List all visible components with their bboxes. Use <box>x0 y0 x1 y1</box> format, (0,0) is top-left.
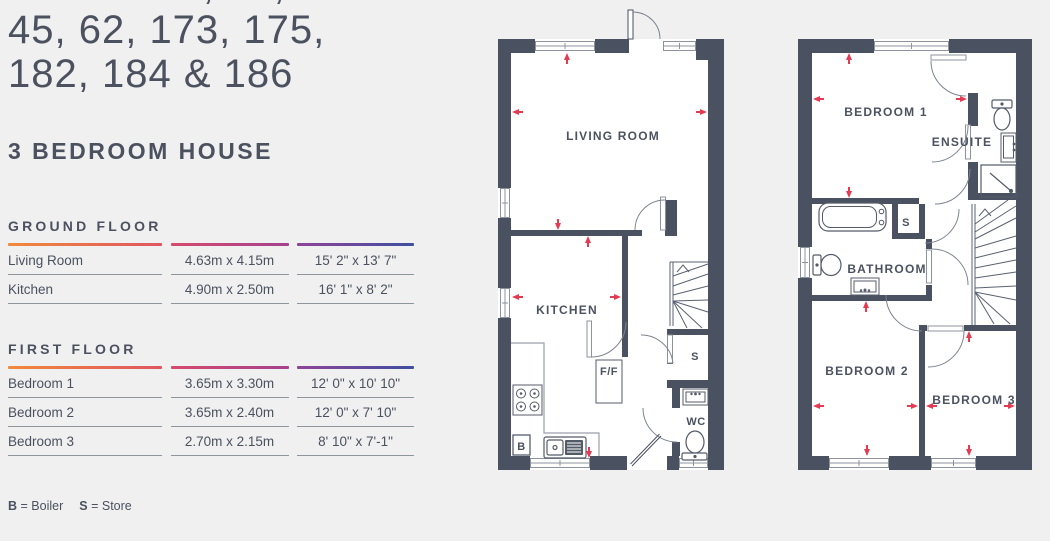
first-floor-plan: BEDROOM 1 ENSUITE S BATHROOM BEDROOM 2 B… <box>798 4 1034 474</box>
first-floor-heading: FIRST FLOOR <box>8 341 414 357</box>
store-label: S <box>691 351 699 363</box>
door-arc-icon <box>633 12 660 39</box>
front-door <box>628 10 660 39</box>
room-name: Living Room <box>8 246 162 275</box>
room-imperial-dims: 12' 0" x 7' 10" <box>297 398 414 427</box>
kitchen-sink-icon <box>544 437 586 458</box>
ground-floor-heading: GROUND FLOOR <box>8 218 414 234</box>
plots-title-line2: 45, 62, 173, 175, <box>8 8 325 52</box>
toilet-icon <box>992 100 1012 130</box>
table-row: Bedroom 2 3.65m x 2.40m 12' 0" x 7' 10" <box>8 398 414 427</box>
ground-floor-table: GROUND FLOOR Living Room 4.63m x 4.15m 1… <box>8 218 414 304</box>
legend-key: S <box>79 499 87 513</box>
room-metric-dims: 3.65m x 3.30m <box>171 369 289 398</box>
table-row: Kitchen 4.90m x 2.50m 16' 1" x 8' 2" <box>8 275 414 304</box>
room-metric-dims: 2.70m x 2.15m <box>171 427 289 456</box>
boiler-label: B <box>517 441 525 453</box>
bedroom1-label: BEDROOM 1 <box>844 105 927 119</box>
ensuite-label: ENSUITE <box>932 135 992 149</box>
room-name: Bedroom 2 <box>8 398 162 427</box>
bathroom-label: BATHROOM <box>847 262 926 276</box>
legend-text: = Boiler <box>21 499 64 513</box>
wc-label: WC <box>686 416 705 428</box>
first-floor-table: FIRST FLOOR Bedroom 1 3.65m x 3.30m 12' … <box>8 341 414 456</box>
legend-item-boiler: B = Boiler <box>8 499 63 513</box>
room-metric-dims: 4.63m x 4.15m <box>171 246 289 275</box>
room-imperial-dims: 16' 1" x 8' 2" <box>297 275 414 304</box>
kitchen-label: KITCHEN <box>536 303 598 317</box>
ground-floor-plan: B F/F LIVING ROOM KITCHEN S WC <box>494 4 730 474</box>
plots-title-line3: 182, 184 & 186 <box>8 52 325 96</box>
bedroom2-label: BEDROOM 2 <box>825 364 908 378</box>
legend-key: B <box>8 499 17 513</box>
house-type-heading: 3 BEDROOM HOUSE <box>8 138 273 165</box>
room-imperial-dims: 8' 10" x 7'-1" <box>297 427 414 456</box>
room-name: Bedroom 3 <box>8 427 162 456</box>
legend-text: = Store <box>91 499 132 513</box>
room-metric-dims: 4.90m x 2.50m <box>171 275 289 304</box>
fridge-freezer-label: F/F <box>600 366 618 378</box>
room-imperial-dims: 12' 0" x 10' 10" <box>297 369 414 398</box>
plots-title: PLOTS 34, 36, 45, 62, 173, 175, 182, 184… <box>8 0 325 96</box>
brochure-page: PLOTS 34, 36, 45, 62, 173, 175, 182, 184… <box>0 0 1050 541</box>
living-room-label: LIVING ROOM <box>566 129 660 143</box>
room-name: Bedroom 1 <box>8 369 162 398</box>
bathtub-icon <box>819 203 886 231</box>
plan-legend: B = BoilerS = Store <box>8 499 148 513</box>
room-name: Kitchen <box>8 275 162 304</box>
table-row: Living Room 4.63m x 4.15m 15' 2" x 13' 7… <box>8 246 414 275</box>
toilet-icon <box>813 255 841 276</box>
boiler-box: B <box>513 435 530 455</box>
legend-item-store: S = Store <box>79 499 131 513</box>
room-metric-dims: 3.65m x 2.40m <box>171 398 289 427</box>
fridge-freezer-box: F/F <box>596 360 622 403</box>
table-row: Bedroom 3 2.70m x 2.15m 8' 10" x 7'-1" <box>8 427 414 456</box>
plots-title-line1: PLOTS 34, 36, <box>8 0 325 8</box>
bedroom3-label: BEDROOM 3 <box>932 393 1015 407</box>
room-imperial-dims: 15' 2" x 13' 7" <box>297 246 414 275</box>
store-label: S <box>902 217 910 229</box>
table-row: Bedroom 1 3.65m x 3.30m 12' 0" x 10' 10" <box>8 369 414 398</box>
